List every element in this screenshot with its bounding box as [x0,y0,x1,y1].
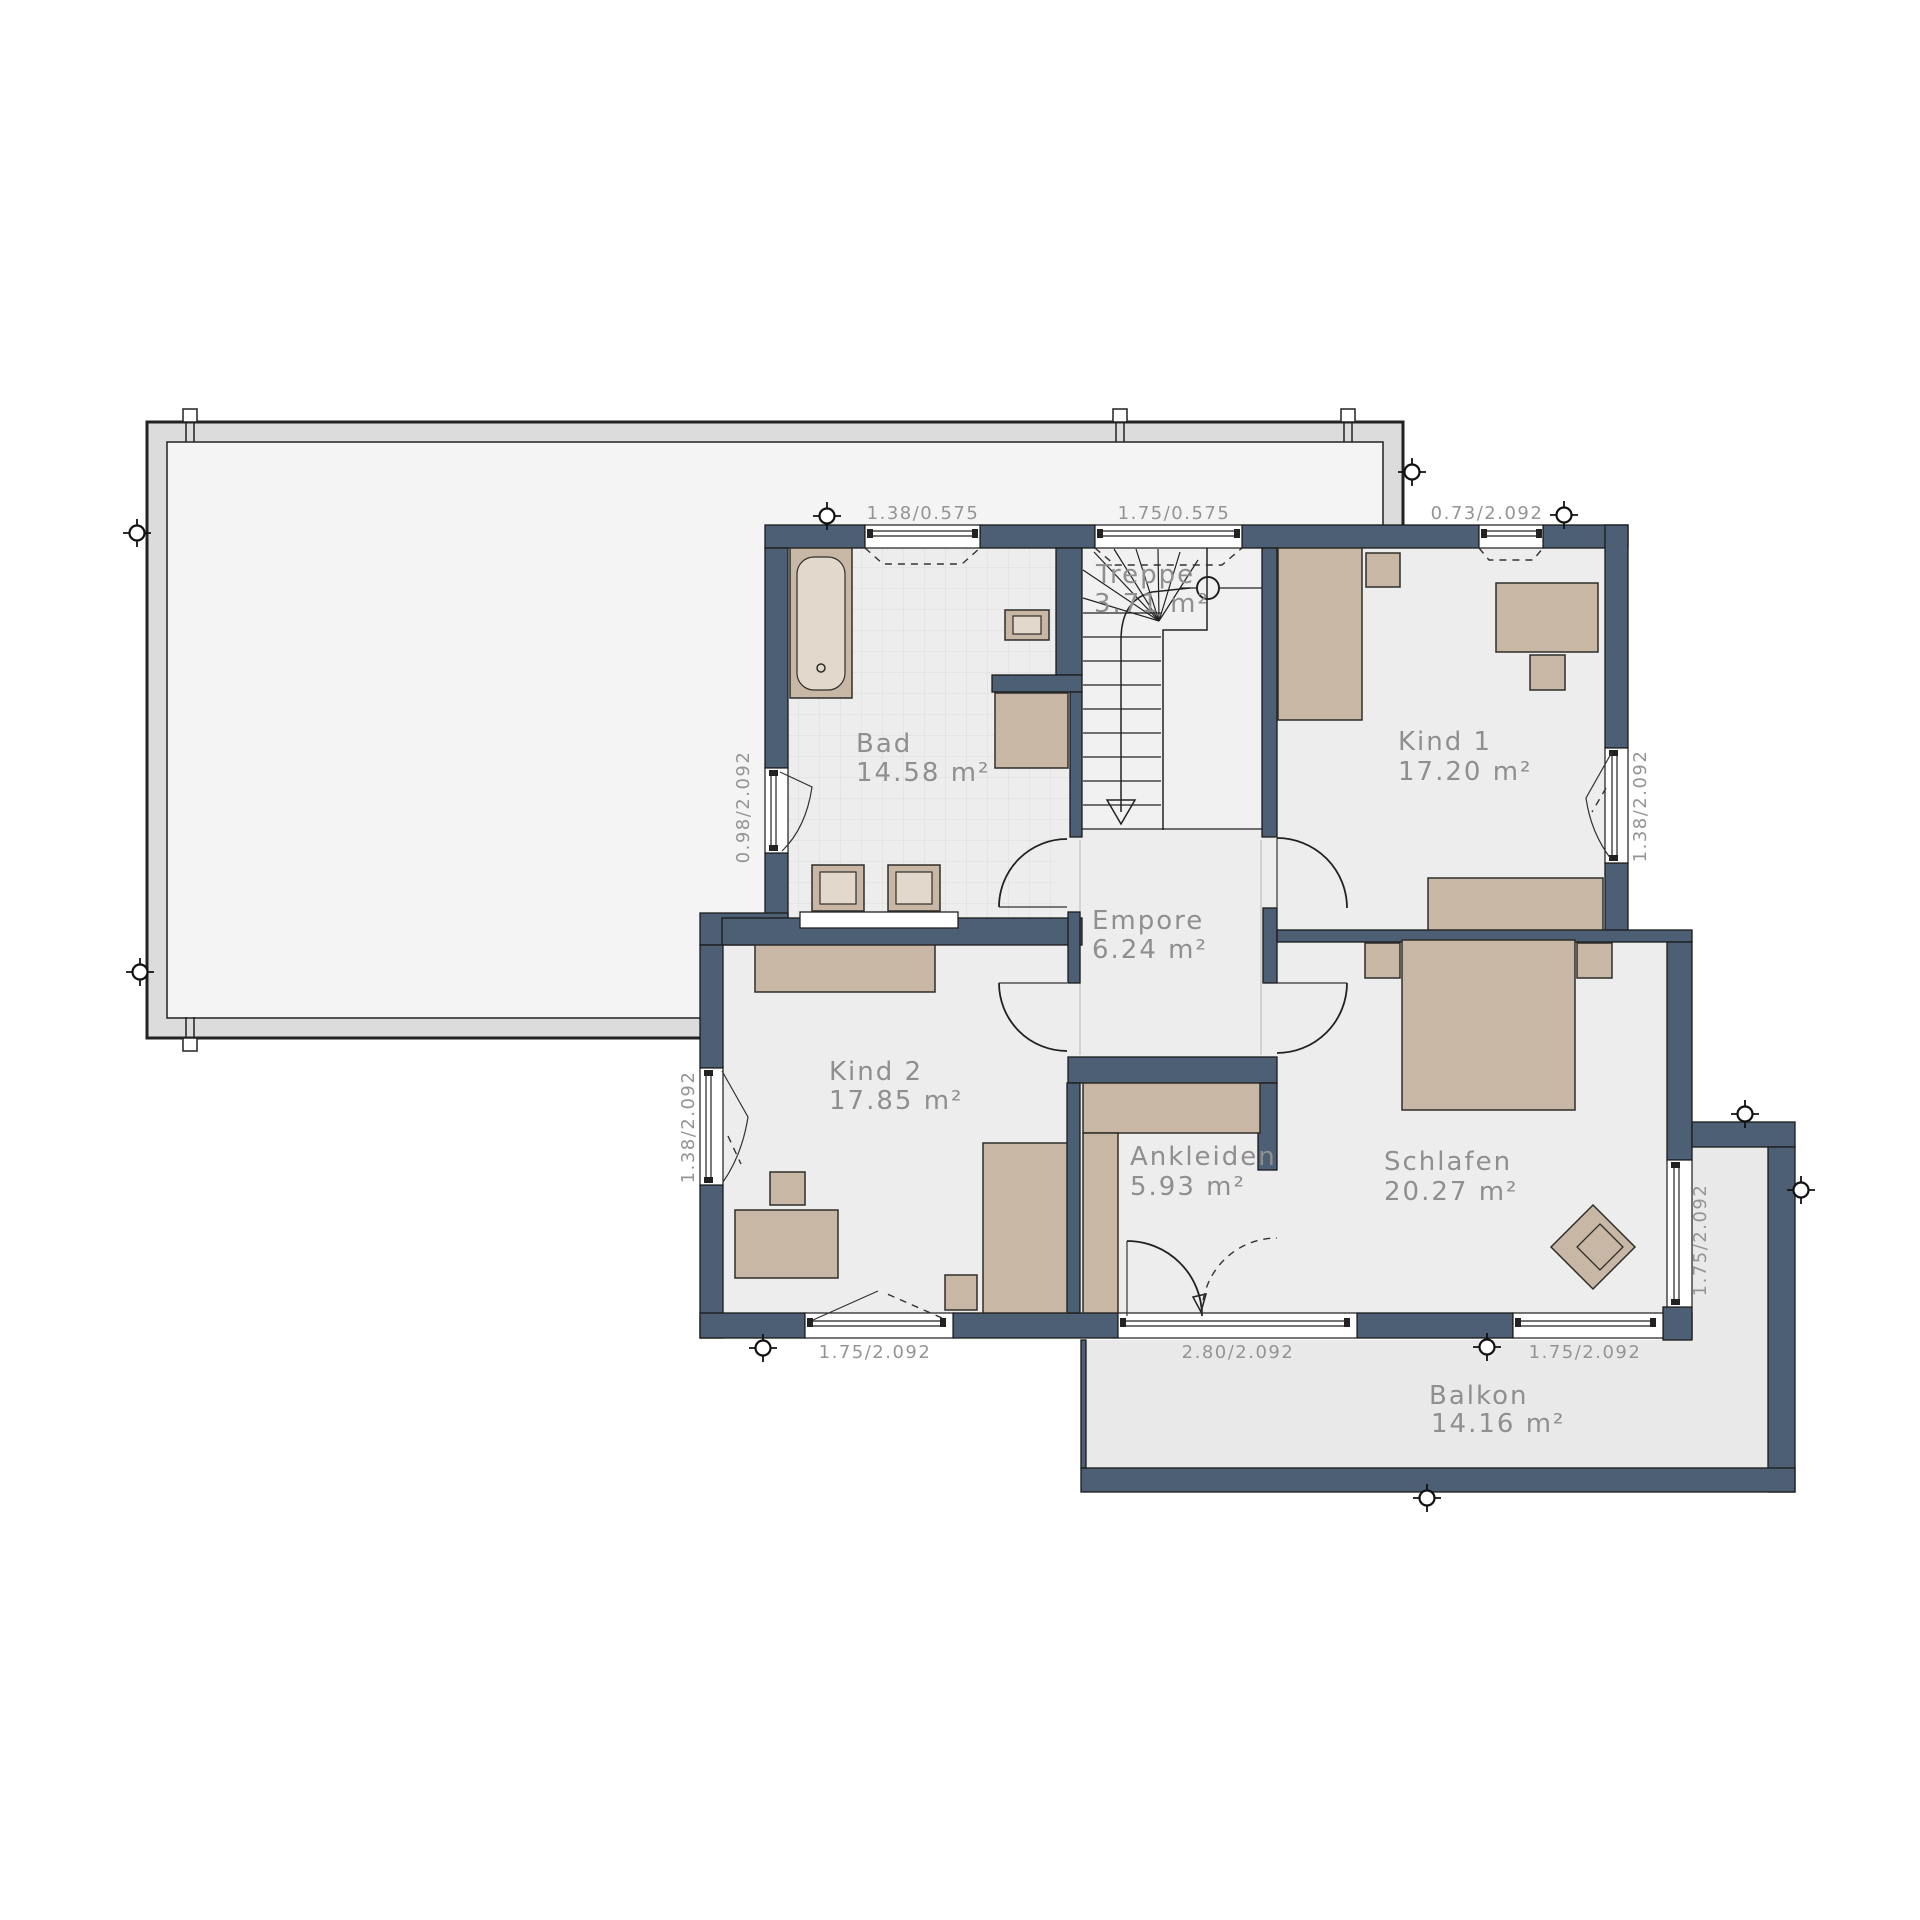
area-treppe: 3.71 m² [1094,589,1210,619]
dim-right-kind1: 1.38/2.092 [1630,750,1651,863]
area-empore: 6.24 m² [1092,935,1208,965]
window-kind2-bottom [805,1313,953,1338]
window-kind1-top [1479,525,1543,548]
balcony-parapet-bottom [1081,1468,1795,1492]
kind1-wardrobe [1428,878,1603,930]
bathtub [790,548,852,698]
floorplan-canvas: Treppe 3.71 m² Bad 14.58 m² Kind 1 17.20… [0,0,1920,1920]
area-bad: 14.58 m² [856,758,990,788]
balcony-parapet-right [1768,1147,1795,1492]
label-bad: Bad [856,729,912,759]
dim-bottom-1: 1.75/2.092 [819,1342,932,1363]
dim-left-kind2: 1.38/2.092 [678,1071,699,1184]
window-treppe-top [1095,525,1242,548]
label-kind1: Kind 1 [1398,727,1492,757]
area-kind2: 17.85 m² [829,1086,963,1116]
balcony-edge-left [1081,1340,1086,1468]
dim-bottom-2: 2.80/2.092 [1182,1342,1295,1363]
label-kind2: Kind 2 [829,1057,923,1087]
area-balkon: 14.16 m² [1431,1409,1565,1439]
window-schlafen-bottom [1513,1313,1663,1338]
label-schlafen: Schlafen [1384,1147,1512,1177]
window-bad-top [865,525,980,548]
dim-right-schlafen: 1.75/2.092 [1690,1184,1711,1297]
dim-bottom-3: 1.75/2.092 [1529,1342,1642,1363]
area-ankleiden: 5.93 m² [1130,1172,1246,1202]
label-balkon: Balkon [1429,1381,1529,1411]
area-kind1: 17.20 m² [1398,757,1532,787]
dim-top-2: 1.75/0.575 [1118,503,1231,524]
label-empore: Empore [1092,906,1204,936]
balcony-door [1118,1313,1357,1338]
dim-left-bad: 0.98/2.092 [733,751,754,864]
kind2-wardrobe [755,945,935,992]
window-kind1-right [1605,748,1628,863]
area-schlafen: 20.27 m² [1384,1177,1518,1207]
schlafen-bed [1365,940,1612,1110]
label-treppe: Treppe [1095,560,1195,590]
dim-top-3: 0.73/2.092 [1431,503,1544,524]
label-ankleiden: Ankleiden [1130,1142,1277,1172]
window-kind2-left [700,1068,723,1185]
floorplan-page: Treppe 3.71 m² Bad 14.58 m² Kind 1 17.20… [0,0,1920,1920]
toilet [1005,610,1049,640]
balcony-parapet-top [1692,1122,1795,1147]
dim-top-1: 1.38/0.575 [867,503,980,524]
bath-cabinet [995,693,1068,768]
window-bad-left [765,768,788,853]
window-schlafen-right [1667,1160,1692,1307]
